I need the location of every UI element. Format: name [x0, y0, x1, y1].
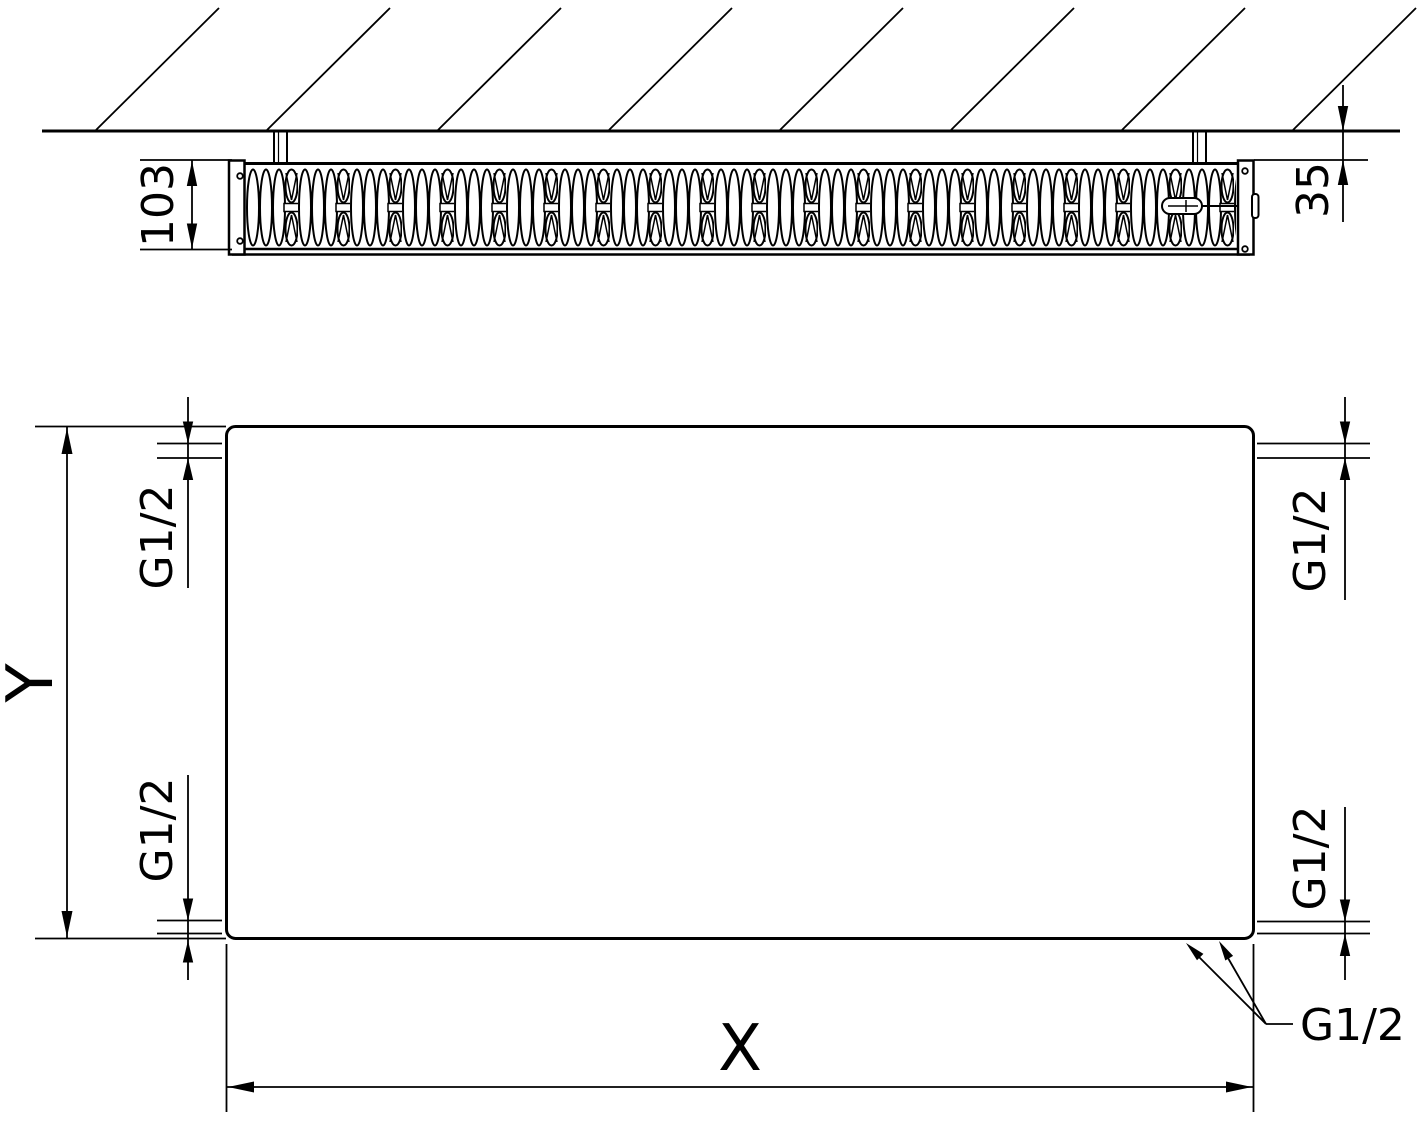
connection-label-top-left: G1/2 [132, 485, 183, 590]
width-dimension-label: X [718, 1012, 762, 1086]
top-view: 103 35 [42, 8, 1416, 255]
convector-fins [246, 167, 1236, 248]
front-view: Y X G1/2 G1/2 [0, 397, 1405, 1112]
connection-label-bottom-left: G1/2 [132, 778, 183, 883]
wall-bracket-right [1193, 132, 1206, 163]
depth-dimension-label: 103 [133, 163, 184, 247]
connection-label-top-right: G1/2 [1285, 488, 1336, 593]
bottom-connections-leader [1186, 941, 1293, 1024]
wall-hatching [96, 8, 1416, 130]
end-cap-left [229, 161, 245, 255]
bottom-connections-leader-label: G1/2 [1300, 1000, 1405, 1051]
radiator-technical-drawing: 103 35 Y X [0, 0, 1427, 1125]
wall-gap-dimension-label: 35 [1288, 162, 1339, 218]
wall-bracket-left [274, 132, 287, 163]
radiator-section [229, 161, 1259, 255]
connection-label-bottom-right: G1/2 [1285, 806, 1336, 911]
radiator-front-panel [227, 427, 1254, 939]
height-dimension-label: Y [0, 663, 68, 704]
